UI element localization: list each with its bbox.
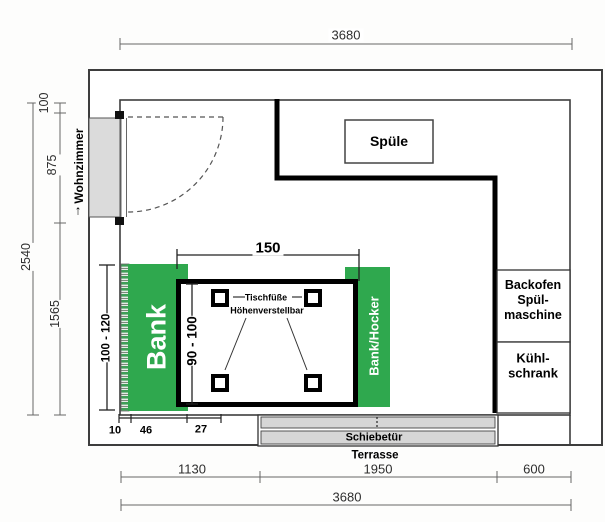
bench-left-label: Bank (144, 304, 171, 370)
dishwasher-label-2: maschine (504, 309, 562, 322)
kitchen-floor-plan: 3680 100 875 1565 2540 Wohnzimmer ↑ Spül… (0, 0, 605, 522)
bench-right-label: Bank/Hocker (368, 296, 381, 375)
floor-plan-drawing (0, 0, 605, 522)
fridge-label-1: Kühl- (516, 352, 549, 365)
table-foot (213, 376, 227, 390)
radiator-strip (121, 264, 129, 411)
dim-bottom-total: 3680 (333, 491, 362, 504)
dim-left-seg-875: 875 (44, 155, 61, 176)
table-foot (213, 291, 227, 305)
dim-left-seg-100: 100 (36, 93, 53, 114)
terrace-label: Terrasse (351, 450, 398, 462)
table-feet-note-2: Höhenverstellbar (230, 307, 304, 316)
living-room-label: Wohnzimmer (73, 128, 85, 203)
sliding-door-label: Schiebetür (346, 433, 403, 444)
door-post-top (115, 111, 124, 119)
table-foot (306, 376, 320, 390)
dishwasher-label-1: Spül- (517, 294, 548, 307)
oven-label: Backofen (505, 279, 561, 292)
table-foot (306, 291, 320, 305)
dim-bottom-seg-1950: 1950 (364, 463, 393, 476)
dim-top-width: 3680 (329, 29, 364, 42)
door-post-bottom (115, 217, 124, 225)
bench-height-dim: 100 - 120 (98, 314, 116, 363)
dim-bottom-seg-600: 600 (523, 463, 545, 476)
table-depth-dim: 90 - 100 (182, 316, 202, 366)
table-feet-note-1: Tischfüße (245, 294, 287, 303)
fridge-label-2: schrank (508, 367, 558, 380)
door-opening (89, 118, 120, 217)
bench-detail-dim-27: 27 (195, 425, 207, 436)
dim-left-seg-1565: 1565 (47, 300, 64, 328)
dim-left-total: 2540 (18, 243, 35, 271)
dim-bottom-seg-1130: 1130 (178, 463, 206, 476)
bench-detail-dim-46: 46 (140, 426, 152, 437)
sliding-door-panel-top (261, 417, 495, 428)
bench-detail-dim-10: 10 (109, 426, 121, 437)
living-room-arrow-icon: ↑ (75, 204, 82, 217)
sink-label: Spüle (370, 134, 408, 148)
table-width-dim: 150 (252, 241, 283, 256)
